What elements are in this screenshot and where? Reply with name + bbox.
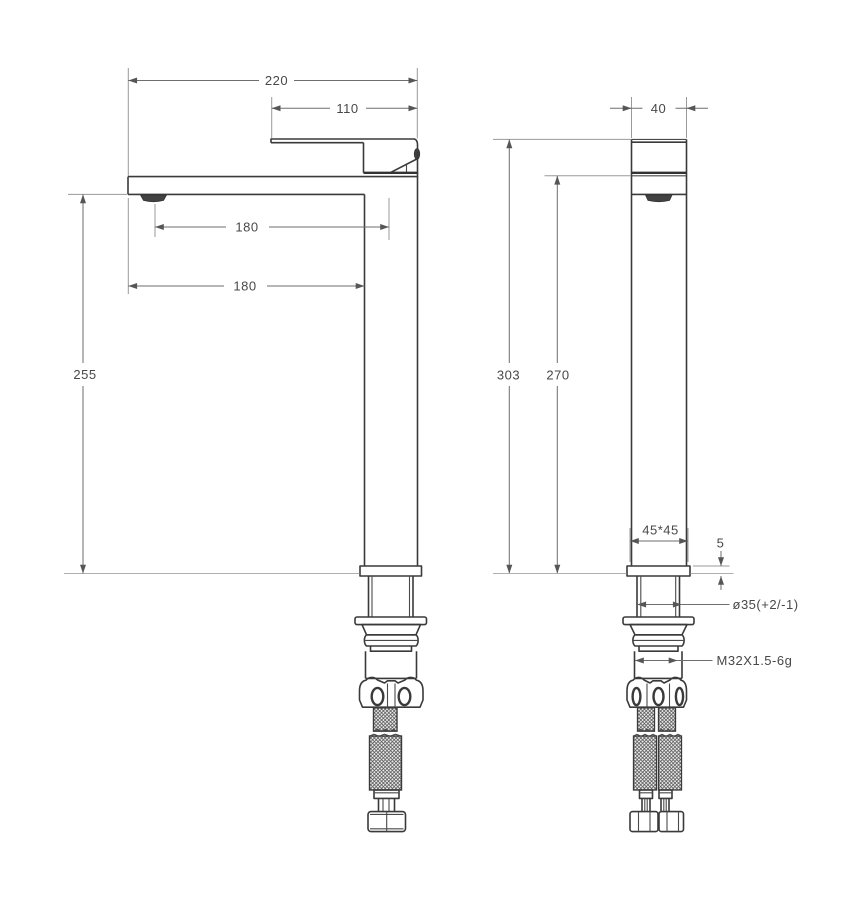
body-column-side: [632, 139, 687, 566]
dim-spout-overhang: 180: [128, 198, 364, 294]
dim-label-total-height: 303: [497, 368, 520, 383]
dim-label-top-width: 40: [651, 101, 666, 116]
drawing-canvas: 220 110 180 180 255: [0, 0, 853, 900]
shank-front: [369, 576, 414, 617]
wing-nut-side: [627, 677, 687, 707]
dim-label-spout-to-axis: 180: [235, 220, 258, 235]
hose-hex-nut-right: [659, 812, 684, 832]
aerator-side: [646, 195, 673, 202]
supply-hoses-side: [630, 708, 684, 832]
dim-body-section: 45*45: [630, 523, 688, 563]
mounting-stack-side: [623, 617, 694, 678]
dim-label-handle-reach: 110: [336, 101, 358, 116]
wing-nut-front: [360, 677, 424, 707]
dim-total-height: 303: [493, 139, 631, 573]
dim-upper-height: 270: [545, 176, 632, 574]
dim-handle-reach: 110: [272, 97, 418, 138]
dim-thread: M32X1.5-6g: [635, 653, 792, 668]
dim-label-spout-overhang: 180: [233, 279, 256, 294]
faucet-dimension-drawing: 220 110 180 180 255: [0, 0, 853, 900]
base-plate-front: [360, 566, 422, 576]
dim-spout-to-axis: 180: [155, 198, 389, 240]
side-view: [623, 139, 694, 831]
supply-hose-front: [368, 708, 406, 832]
side-view-dimensions: 40 303 270 45*45 5: [493, 97, 799, 668]
shank-side: [637, 576, 680, 617]
body-column-front: [365, 151, 418, 566]
dim-label-plate-thickness: 5: [717, 536, 725, 551]
handle-lever: [271, 139, 420, 173]
aerator-front: [141, 195, 167, 202]
dim-mount-hole: ø35(+2/-1): [637, 597, 798, 612]
dim-label-upper-height: 270: [546, 368, 569, 383]
hose-hex-nut-left: [630, 812, 658, 832]
dim-outlet-height: 255: [64, 194, 360, 573]
front-view: [128, 139, 427, 832]
spout: [128, 173, 418, 202]
mounting-stack-front: [355, 617, 427, 678]
dim-overall-width: 220: [128, 68, 417, 176]
dim-label-outlet-height: 255: [73, 367, 96, 382]
dim-label-thread: M32X1.5-6g: [717, 653, 793, 668]
dim-label-mount-hole: ø35(+2/-1): [733, 597, 799, 612]
base-plate-side: [627, 566, 690, 576]
dim-top-width: 40: [610, 97, 708, 138]
dim-label-overall-width: 220: [265, 73, 288, 88]
dim-label-body-section: 45*45: [642, 523, 678, 538]
dim-plate-thickness: 5: [693, 536, 730, 591]
